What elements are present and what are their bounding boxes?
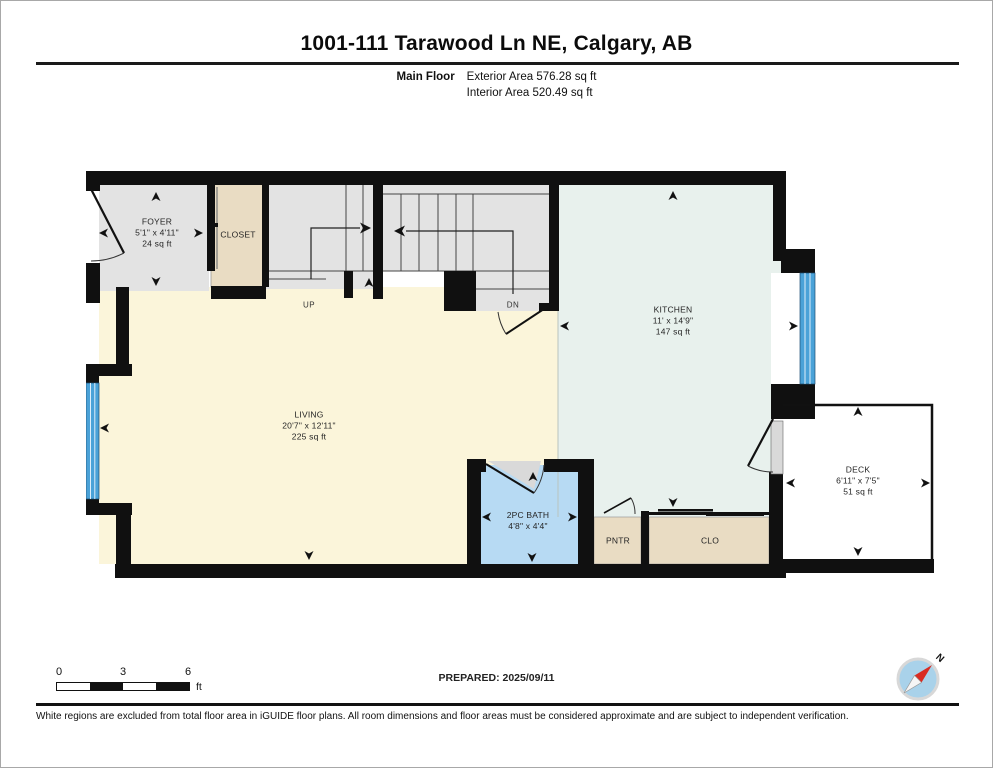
page-title: 1001-111 Tarawood Ln NE, Calgary, AB: [1, 32, 992, 56]
floor-label: Main Floor: [397, 69, 455, 85]
wall-kitchen-right-upper: [773, 171, 786, 261]
closet-label: CLOSET: [220, 229, 255, 240]
wall-between-stair-runs: [373, 181, 383, 299]
deck-door-jamb: [771, 421, 783, 474]
kitchen-arrow-right-icon: [789, 322, 798, 331]
wall-landing-block: [444, 271, 476, 311]
closet-door-stop: [212, 223, 218, 227]
clo-slider-back: [706, 514, 764, 517]
wall-left-corner: [86, 171, 100, 191]
prepared-date: PREPARED: 2025/09/11: [1, 672, 992, 684]
kitchen-area: 147 sq ft: [653, 327, 693, 338]
title-divider: [36, 62, 959, 65]
wall-closet-stairs: [262, 183, 269, 287]
clo-slider-front: [658, 509, 713, 512]
kitchen-dims: 11' x 14'9": [653, 315, 693, 326]
wall-bottom: [115, 564, 786, 578]
foyer-name: FOYER: [135, 216, 179, 227]
floor-summary: Main Floor Exterior Area 576.28 sq ft In…: [1, 69, 992, 101]
closet-name: CLOSET: [220, 229, 255, 240]
floorplan-drawing: FOYER 5'1" x 4'11" 24 sq ft CLOSET UP DN…: [86, 169, 936, 579]
wall-stairs-right: [549, 181, 559, 311]
pantry-label: PNTR: [606, 535, 630, 546]
footer-divider: [36, 703, 959, 706]
wall-deck-bottom: [783, 559, 934, 573]
wall-bath-top-left: [467, 459, 486, 472]
wall-left-below-entry: [86, 263, 100, 303]
wall-left-inset-upper: [116, 287, 129, 366]
wall-stub-below-stairs: [344, 271, 353, 298]
deck-area: 51 sq ft: [836, 487, 880, 498]
wall-step-back: [86, 503, 132, 515]
foyer-area: 24 sq ft: [135, 239, 179, 250]
deck-dims: 6'11" x 7'5": [836, 475, 880, 486]
kitchen-name: KITCHEN: [653, 304, 693, 315]
stairs-up-fill: [264, 183, 373, 289]
stairs-up-label: UP: [303, 301, 315, 310]
compass: N: [894, 653, 954, 705]
living-dims: 20'7" x 12'11": [282, 420, 336, 431]
bath-label: 2PC BATH 4'8" x 4'4": [507, 510, 550, 532]
window-left: [86, 383, 99, 499]
floorplan-page: 1001-111 Tarawood Ln NE, Calgary, AB Mai…: [0, 0, 993, 768]
stairs-down-fill: [383, 183, 549, 271]
wall-left-inset-lower: [116, 514, 131, 566]
stairs-down-label: DN: [507, 301, 520, 310]
bath-name: 2PC BATH: [507, 510, 550, 521]
bath-dims: 4'8" x 4'4": [507, 521, 550, 532]
exterior-area: Exterior Area 576.28 sq ft: [467, 69, 597, 85]
window-right: [800, 273, 815, 384]
clo-name: CLO: [701, 535, 719, 546]
living-label: LIVING 20'7" x 12'11" 225 sq ft: [282, 409, 336, 442]
wall-stub-below-closet: [211, 286, 266, 299]
foyer-dims: 5'1" x 4'11": [135, 227, 179, 238]
wall-bath-left: [467, 459, 481, 564]
living-area: 225 sq ft: [282, 432, 336, 443]
clo-label: CLO: [701, 535, 719, 546]
wall-pantry-clo-divider: [641, 511, 649, 564]
footer-disclaimer: White regions are excluded from total fl…: [36, 711, 959, 722]
pantry-name: PNTR: [606, 535, 630, 546]
wall-bath-top-right: [544, 459, 578, 472]
interior-area: Interior Area 520.49 sq ft: [467, 85, 597, 101]
window-right-bottom-jamb: [771, 384, 815, 419]
deck-label: DECK 6'11" x 7'5" 51 sq ft: [836, 464, 880, 497]
foyer-label: FOYER 5'1" x 4'11" 24 sq ft: [135, 216, 179, 249]
deck-name: DECK: [836, 464, 880, 475]
wall-right-below-deck-door: [769, 472, 783, 564]
window-right-top-jamb: [781, 249, 815, 273]
kitchen-label: KITCHEN 11' x 14'9" 147 sq ft: [653, 304, 693, 337]
living-name: LIVING: [282, 409, 336, 420]
wall-top: [91, 171, 786, 185]
wall-step-out: [86, 364, 132, 376]
wall-bath-right: [578, 459, 594, 564]
